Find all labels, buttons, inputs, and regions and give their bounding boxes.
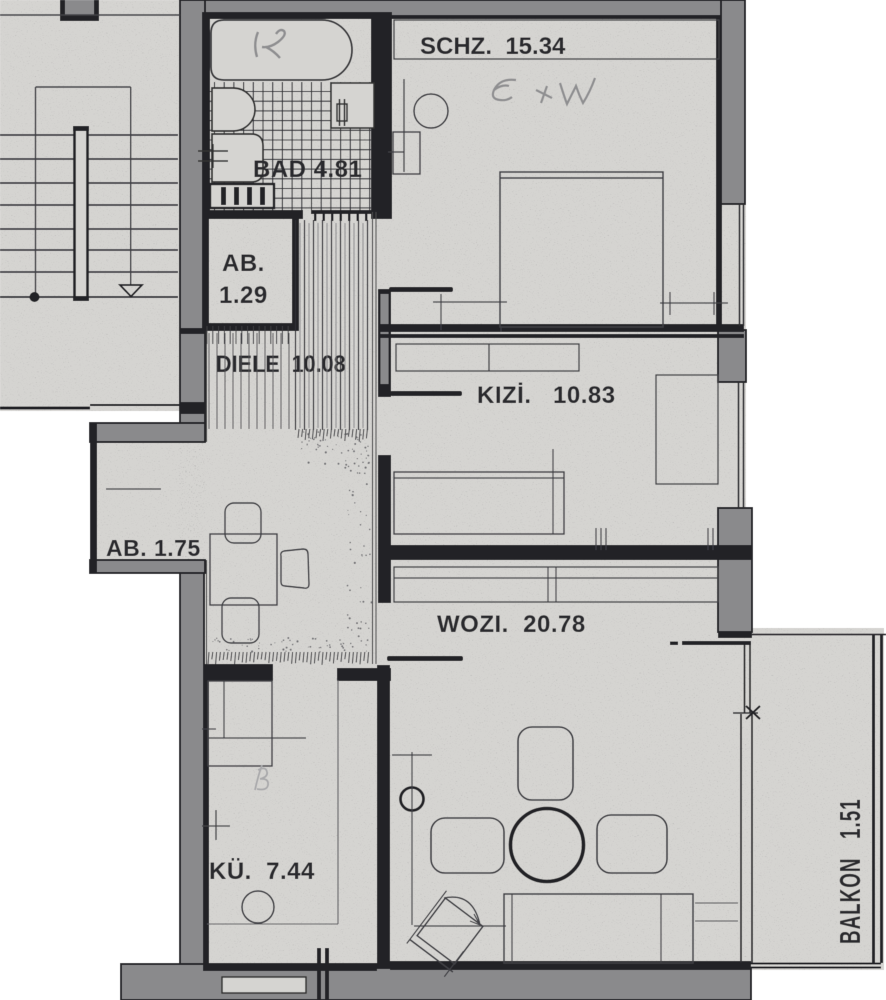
svg-text:WOZI. 20.78: WOZI. 20.78 [437,611,586,638]
svg-text:SCHZ. 15.34: SCHZ. 15.34 [420,33,566,60]
svg-text:1.29: 1.29 [219,282,268,309]
svg-text:AB. 1.75: AB. 1.75 [106,535,201,561]
svg-text:BAD 4.81: BAD 4.81 [253,156,362,183]
svg-text:KIZİ. 10.83: KIZİ. 10.83 [477,382,616,409]
svg-text:KÜ. 7.44: KÜ. 7.44 [209,858,315,885]
svg-text:AB.: AB. [222,250,265,277]
svg-text:BALKON 1.51: BALKON 1.51 [835,798,867,944]
